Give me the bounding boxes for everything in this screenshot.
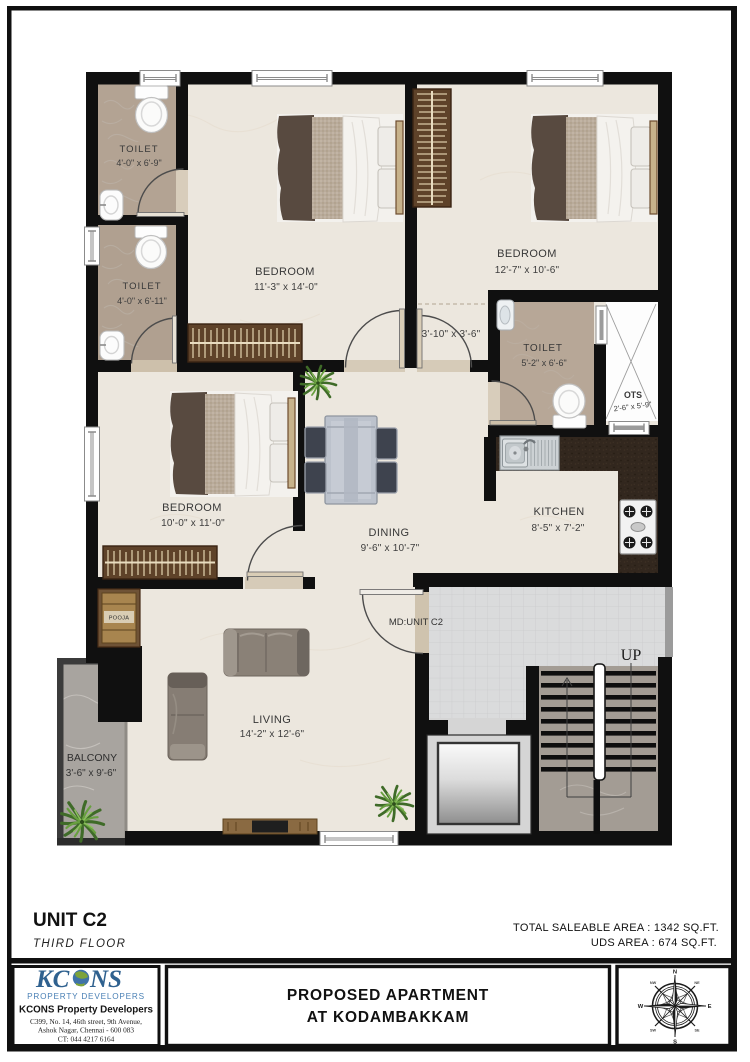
svg-text:Ashok Nagar, Chennai - 600 083: Ashok Nagar, Chennai - 600 083 <box>38 1026 135 1035</box>
svg-text:14'-2" x 12'-6": 14'-2" x 12'-6" <box>240 729 305 740</box>
svg-text:S: S <box>673 1040 677 1046</box>
svg-text:4'-0" x 6'-9": 4'-0" x 6'-9" <box>116 158 161 168</box>
svg-text:4'-0" x 6'-11": 4'-0" x 6'-11" <box>117 296 167 306</box>
svg-text:NS: NS <box>89 966 122 993</box>
svg-text:5'-2" x 6'-6": 5'-2" x 6'-6" <box>521 358 566 368</box>
svg-text:AT KODAMBAKKAM: AT KODAMBAKKAM <box>307 1009 469 1026</box>
svg-text:UNIT C2: UNIT C2 <box>33 910 107 931</box>
svg-text:SE: SE <box>694 1029 700 1033</box>
svg-text:BALCONY: BALCONY <box>67 752 117 764</box>
svg-text:NW: NW <box>650 981 657 985</box>
svg-text:3'-10" x 3'-6": 3'-10" x 3'-6" <box>422 329 481 340</box>
svg-text:SW: SW <box>650 1029 657 1033</box>
svg-text:DINING: DINING <box>369 527 410 539</box>
svg-text:TOILET: TOILET <box>122 281 161 292</box>
svg-text:N: N <box>673 970 677 976</box>
svg-text:11'-3" x 14'-0": 11'-3" x 14'-0" <box>254 282 318 293</box>
svg-text:TOTAL SALEABLE AREA : 1342 S: TOTAL SALEABLE AREA : 1342 SQ.FT. <box>513 922 719 934</box>
svg-text:12'-7" x 10'-6": 12'-7" x 10'-6" <box>495 265 560 276</box>
svg-text:BEDROOM: BEDROOM <box>497 248 557 260</box>
svg-text:8'-5" x 7'-2": 8'-5" x 7'-2" <box>532 523 585 534</box>
svg-text:POOJA: POOJA <box>109 616 129 622</box>
svg-text:TOILET: TOILET <box>119 144 158 155</box>
svg-text:MD:UNIT C2: MD:UNIT C2 <box>389 617 443 628</box>
svg-text:W: W <box>638 1004 644 1010</box>
svg-text:9'-6" x 10'-7": 9'-6" x 10'-7" <box>361 543 420 554</box>
svg-text:3'-6" x 9'-6": 3'-6" x 9'-6" <box>66 768 117 779</box>
svg-text:LIVING: LIVING <box>253 714 291 726</box>
svg-text:OTS: OTS <box>624 390 642 400</box>
svg-text:UDS AREA : 674 SQ.FT.: UDS AREA : 674 SQ.FT. <box>591 937 717 949</box>
svg-text:NE: NE <box>694 981 700 985</box>
svg-text:E: E <box>708 1004 712 1010</box>
svg-text:CT: 044 4217 6164: CT: 044 4217 6164 <box>58 1035 115 1044</box>
svg-text:THIRD FLOOR: THIRD FLOOR <box>33 938 126 950</box>
svg-text:KCONS Property Developers: KCONS Property Developers <box>19 1005 153 1016</box>
svg-text:BEDROOM: BEDROOM <box>162 502 222 514</box>
svg-text:BEDROOM: BEDROOM <box>255 266 315 278</box>
svg-text:KC: KC <box>35 966 70 993</box>
svg-text:10'-0" x 11'-0": 10'-0" x 11'-0" <box>161 518 225 529</box>
svg-text:PROPOSED APARTMENT: PROPOSED APARTMENT <box>287 987 489 1004</box>
svg-text:UP: UP <box>621 647 642 664</box>
svg-text:KITCHEN: KITCHEN <box>533 506 584 518</box>
svg-text:TOILET: TOILET <box>523 343 563 354</box>
svg-text:PROPERTY DEVELOPERS: PROPERTY DEVELOPERS <box>27 992 145 1001</box>
